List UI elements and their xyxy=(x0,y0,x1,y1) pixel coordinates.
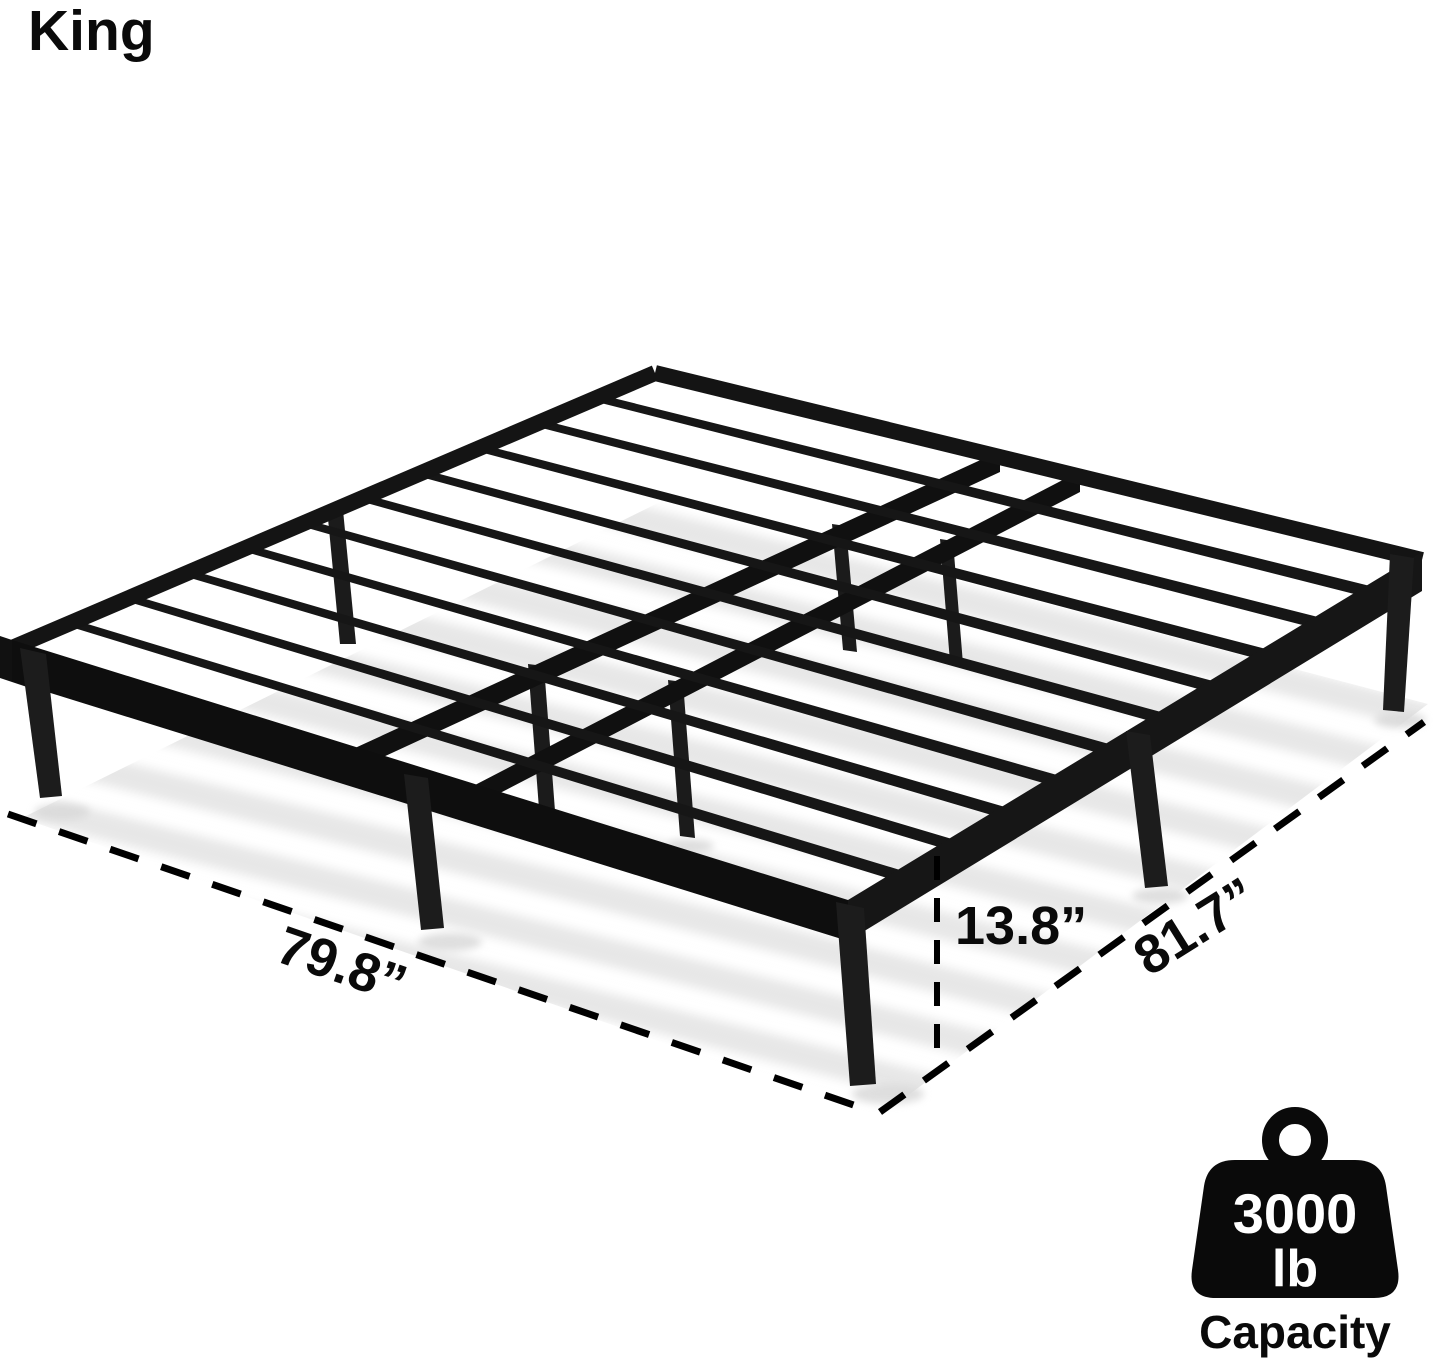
capacity-caption: Capacity xyxy=(1199,1306,1391,1358)
slat xyxy=(597,394,1370,598)
capacity-value: 3000 xyxy=(1233,1182,1358,1245)
weight-icon-handle xyxy=(1271,1116,1320,1165)
height-dimension-label: 13.8” xyxy=(955,896,1087,956)
capacity-badge: 3000 lb Capacity xyxy=(1192,1116,1399,1359)
capacity-unit: lb xyxy=(1272,1240,1318,1298)
floor-shadow xyxy=(0,360,1433,1213)
rim-edge-far-right xyxy=(655,373,1422,560)
bed-frame-illustration: 79.8” 81.7” 13.8” 3000 lb Capacity xyxy=(0,0,1433,1359)
product-dimension-diagram: King xyxy=(0,0,1433,1359)
weight-icon: 3000 lb xyxy=(1192,1116,1399,1299)
